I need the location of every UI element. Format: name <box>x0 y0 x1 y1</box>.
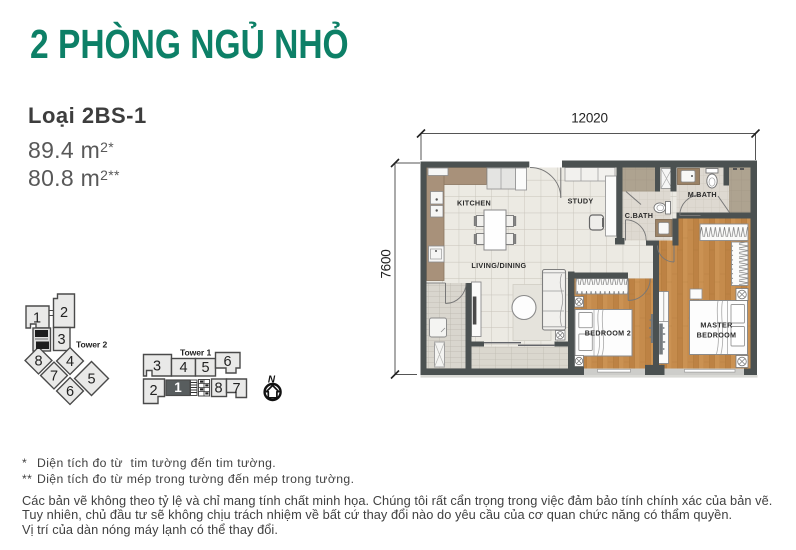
svg-text:3: 3 <box>153 359 161 375</box>
svg-text:7: 7 <box>50 369 58 385</box>
svg-text:MASTER: MASTER <box>700 320 733 329</box>
svg-text:4: 4 <box>179 360 187 376</box>
svg-text:6: 6 <box>66 384 74 400</box>
svg-text:BEDROOM: BEDROOM <box>697 330 737 339</box>
svg-text:BEDROOM 2: BEDROOM 2 <box>585 328 631 337</box>
svg-text:7: 7 <box>232 381 240 397</box>
svg-text:M.BATH: M.BATH <box>688 190 717 199</box>
svg-text:1: 1 <box>174 380 182 395</box>
svg-text:Tower 2: Tower 2 <box>76 340 107 350</box>
svg-text:6: 6 <box>223 354 231 370</box>
svg-text:1: 1 <box>33 311 41 327</box>
svg-text:5: 5 <box>201 360 209 376</box>
svg-text:8: 8 <box>214 381 222 397</box>
svg-text:2: 2 <box>149 383 157 399</box>
svg-text:KITCHEN: KITCHEN <box>457 199 491 208</box>
svg-text:N: N <box>268 375 276 386</box>
svg-text:4: 4 <box>66 354 74 370</box>
svg-text:5: 5 <box>87 372 95 388</box>
svg-text:7600: 7600 <box>379 249 394 278</box>
svg-text:LIVING/DINING: LIVING/DINING <box>471 261 526 270</box>
svg-text:STUDY: STUDY <box>568 197 594 206</box>
svg-text:8: 8 <box>34 354 42 370</box>
svg-text:Tower 1: Tower 1 <box>180 348 211 358</box>
svg-text:C.BATH: C.BATH <box>625 211 653 220</box>
svg-text:12020: 12020 <box>571 111 608 126</box>
svg-text:3: 3 <box>57 332 65 348</box>
svg-text:2: 2 <box>60 305 68 321</box>
